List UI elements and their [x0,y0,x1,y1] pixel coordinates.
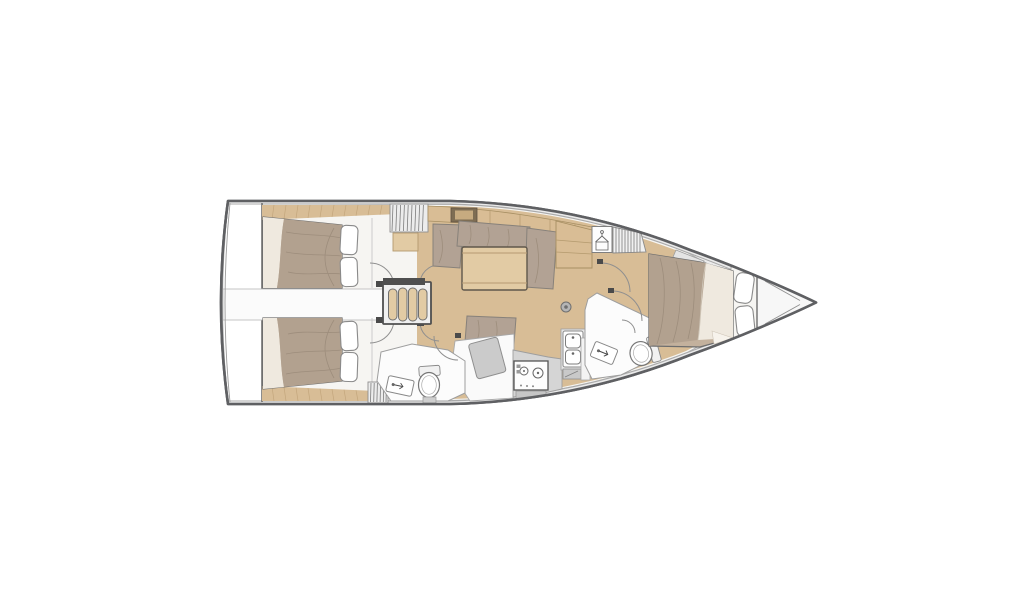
door-hinge [597,259,603,264]
double-berth [263,217,342,288]
sink-basin [566,334,581,348]
floor-plan-canvas [0,0,1024,600]
island-berth [649,254,733,347]
blanket [277,219,342,288]
pillow [340,225,358,255]
settee-cushion-right [525,228,557,289]
boat-floor-plan [0,0,1024,600]
stair-step [389,289,398,320]
pillow [340,352,358,382]
pillow [340,257,358,287]
stair-step [419,289,428,320]
stove-knob-dot [532,385,534,387]
stair-step [399,288,408,321]
toilet-base [423,397,436,403]
companionway-stairs [383,278,431,324]
door-hinge [455,333,461,338]
stove-burner-center [523,370,525,372]
door-hinge [608,288,614,293]
stove-burner-center [537,372,539,374]
stove-knob [517,370,521,374]
stair-top-threshold [383,278,425,285]
cabinet-opening-inner [455,211,473,220]
stove-knob-dot [520,385,522,387]
saloon-table [462,247,527,290]
faucet-dot [572,336,575,339]
stair-step [409,288,418,321]
stove [514,361,548,390]
mast-step-center [564,305,568,309]
stove-knob-dot [526,385,528,387]
sink-basin [566,350,581,364]
stove-knob [517,365,521,369]
faucet-dot [572,352,575,355]
pillow [340,321,358,351]
locker-box [393,233,418,251]
pillow [733,272,755,304]
blanket [277,318,342,387]
double-berth [263,318,342,389]
